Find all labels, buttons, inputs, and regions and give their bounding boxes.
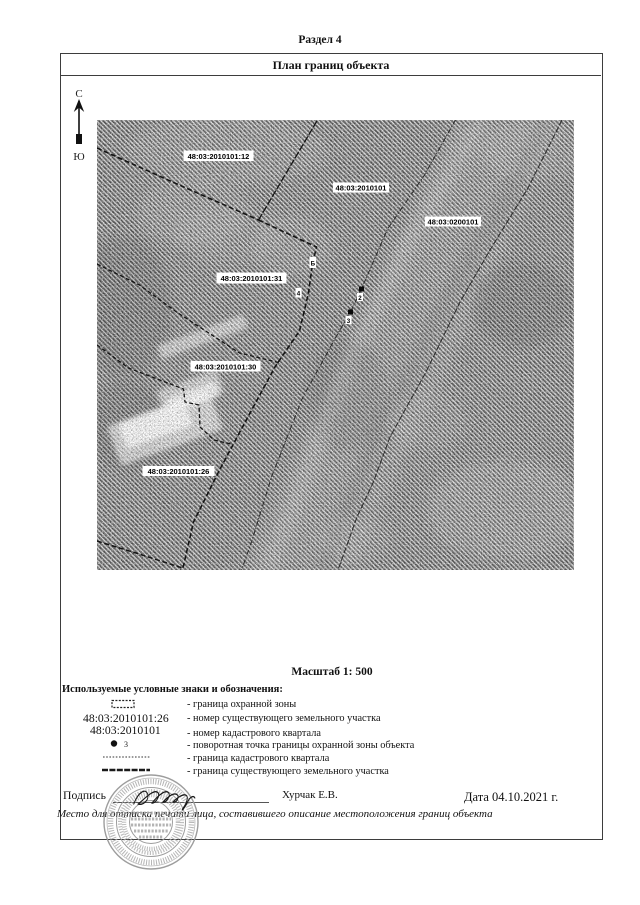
svg-text:48:03:2010101:31: 48:03:2010101:31: [221, 274, 283, 283]
svg-text:48:03:2010101:26: 48:03:2010101:26: [148, 467, 210, 476]
svg-text:Б: Б: [311, 261, 316, 268]
svg-text:48:03:2010101:12: 48:03:2010101:12: [188, 152, 250, 161]
svg-text:3: 3: [124, 740, 128, 749]
svg-text:2: 2: [358, 295, 362, 302]
svg-text:48:03:0200101: 48:03:0200101: [428, 218, 479, 227]
svg-text:48:03:2010101:30: 48:03:2010101:30: [195, 362, 257, 371]
svg-text:Ю: Ю: [73, 151, 84, 163]
svg-text:48:03:2010101: 48:03:2010101: [336, 184, 387, 193]
svg-text:С: С: [75, 88, 82, 100]
svg-text:3: 3: [347, 318, 351, 325]
svg-text:4: 4: [297, 291, 301, 298]
